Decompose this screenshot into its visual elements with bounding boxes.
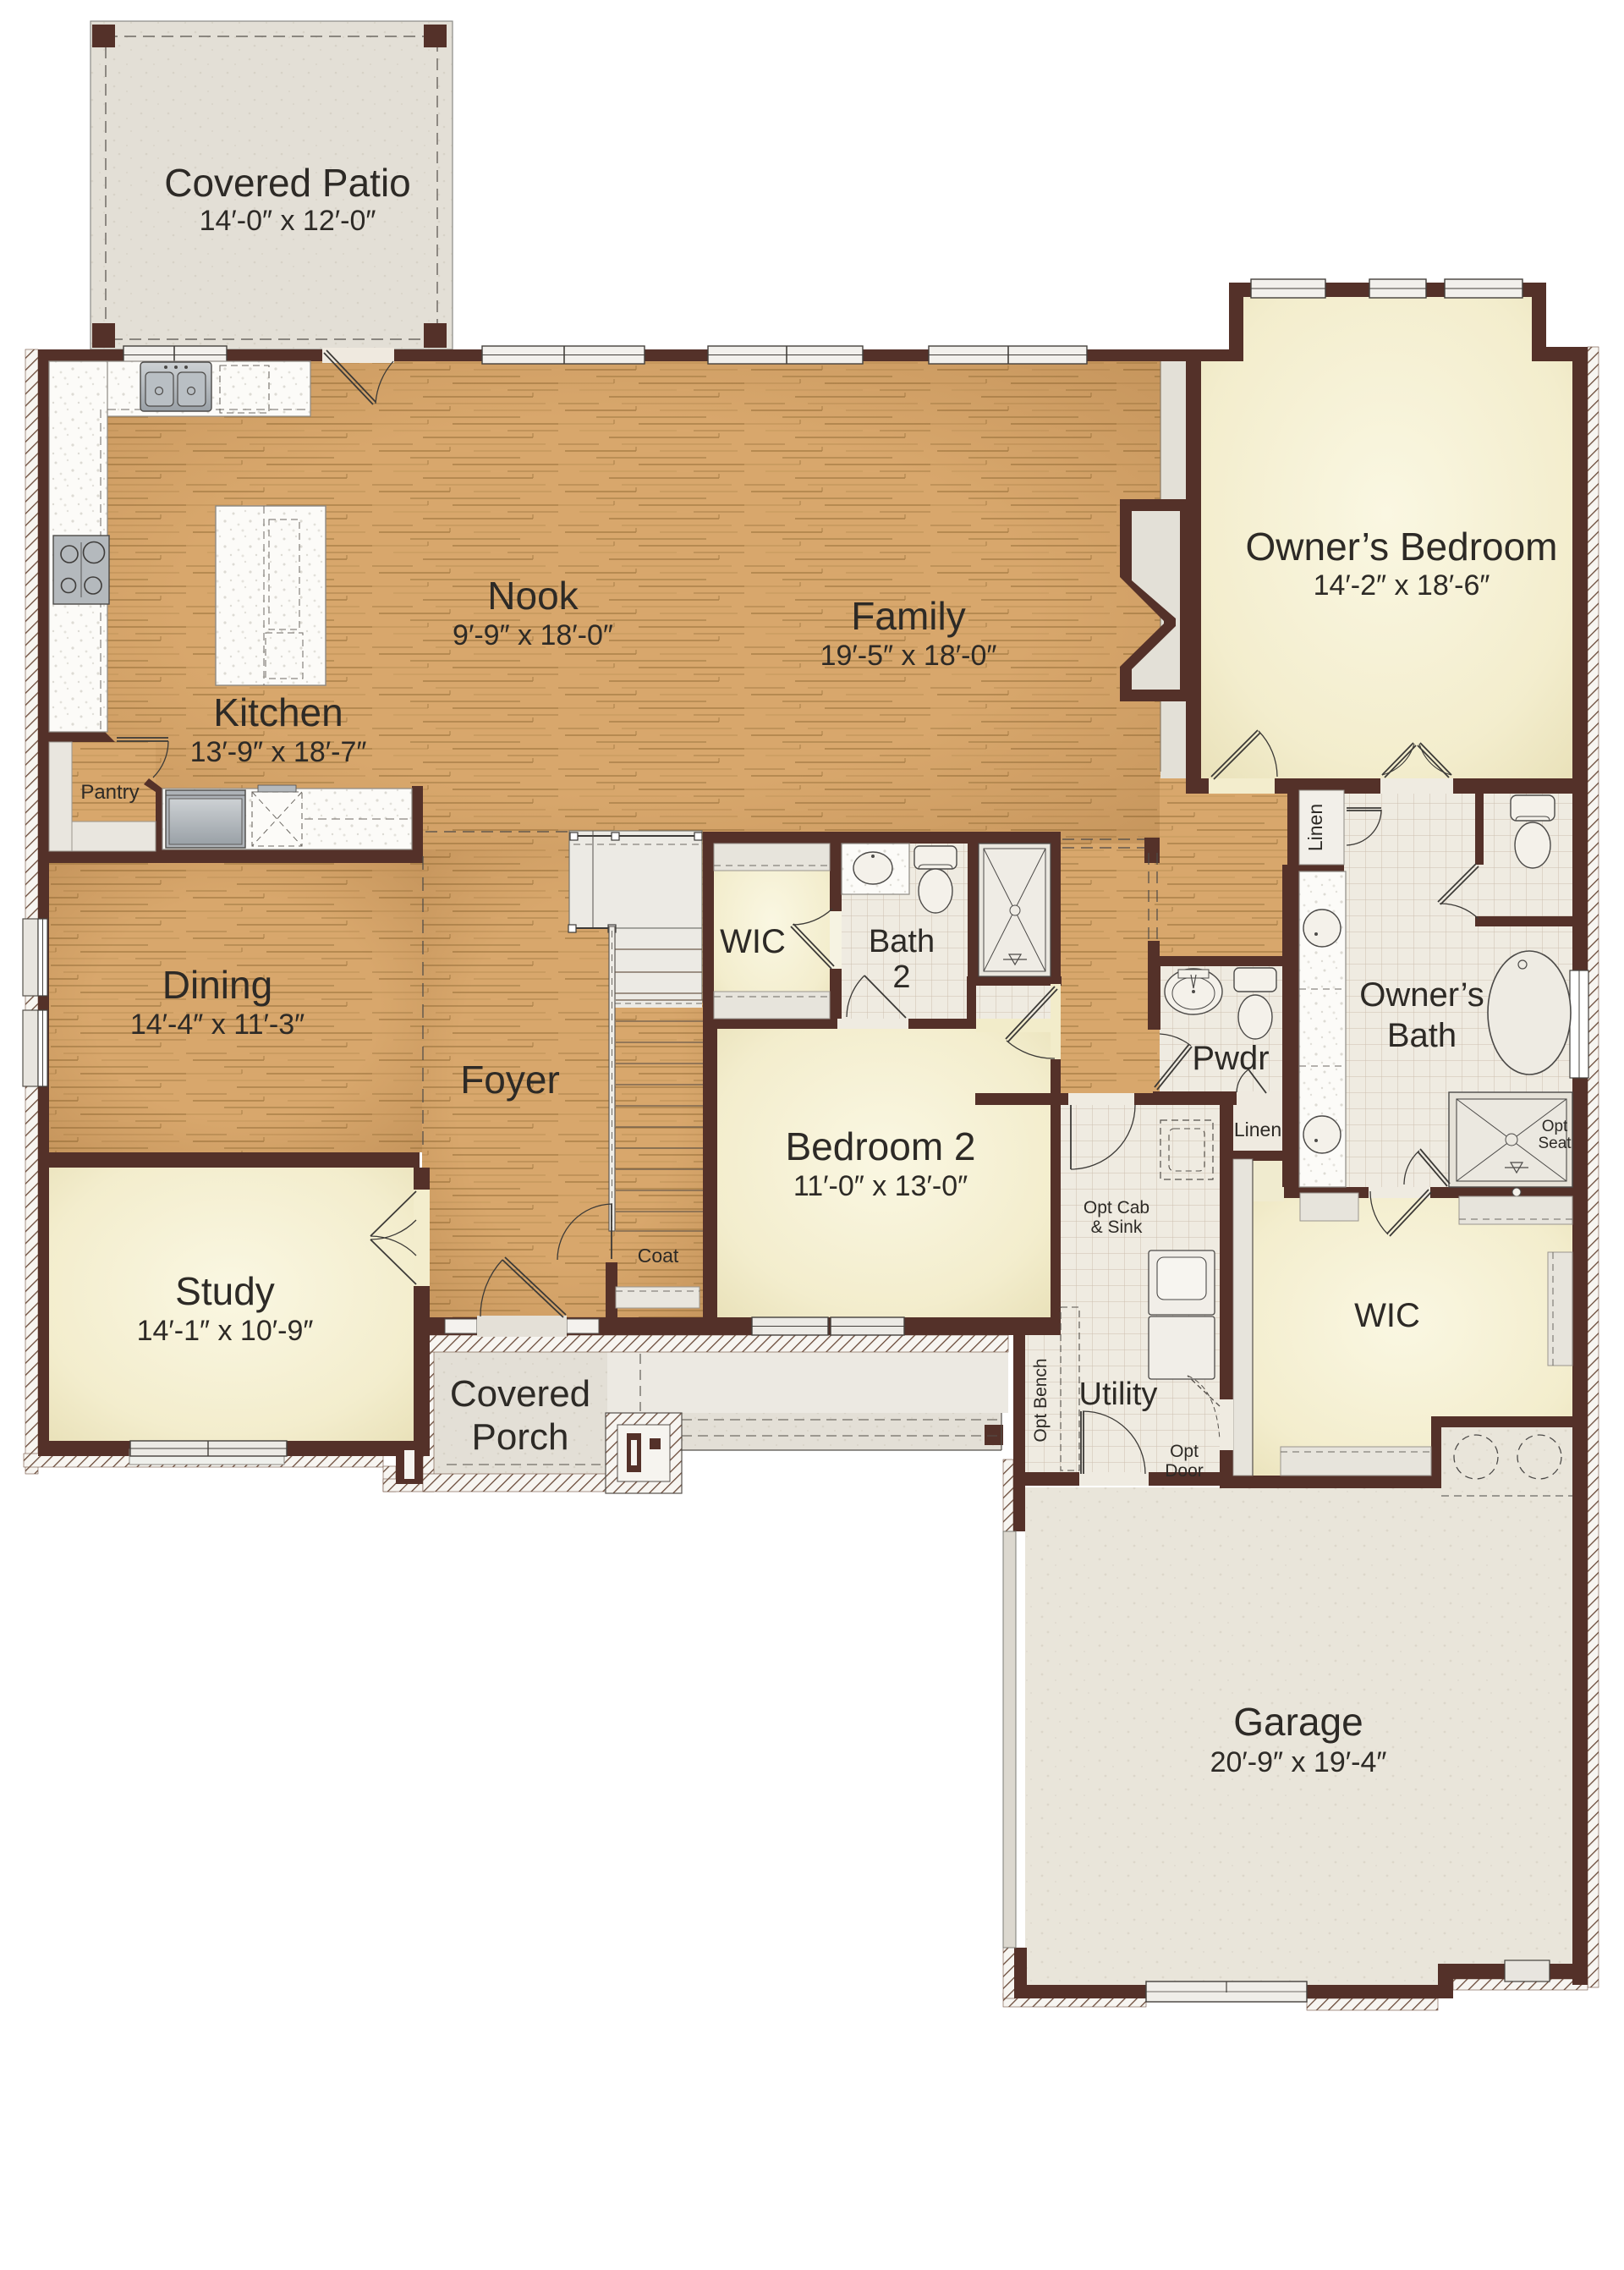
svg-text:20′-9″ x 19′-4″: 20′-9″ x 19′-4″ bbox=[1210, 1746, 1387, 1778]
svg-text:Study: Study bbox=[175, 1269, 275, 1313]
svg-text:11′-0″ x 13′-0″: 11′-0″ x 13′-0″ bbox=[793, 1170, 968, 1202]
svg-text:Bath: Bath bbox=[1387, 1017, 1457, 1054]
svg-text:Linen: Linen bbox=[1304, 804, 1326, 851]
svg-text:9′-9″ x 18′-0″: 9′-9″ x 18′-0″ bbox=[453, 619, 613, 651]
svg-text:Covered Patio: Covered Patio bbox=[164, 161, 411, 205]
svg-text:Covered: Covered bbox=[450, 1373, 590, 1415]
svg-text:Garage: Garage bbox=[1233, 1700, 1363, 1744]
svg-text:14′-0″ x 12′-0″: 14′-0″ x 12′-0″ bbox=[200, 205, 376, 237]
svg-text:Opt: Opt bbox=[1542, 1118, 1568, 1135]
svg-text:WIC: WIC bbox=[720, 923, 786, 960]
svg-text:Dining: Dining bbox=[162, 963, 272, 1007]
svg-text:14′-2″ x 18′-6″: 14′-2″ x 18′-6″ bbox=[1314, 569, 1490, 602]
svg-text:Opt Bench: Opt Bench bbox=[1031, 1358, 1051, 1442]
svg-text:Nook: Nook bbox=[487, 574, 579, 618]
svg-text:14′-4″ x 11′-3″: 14′-4″ x 11′-3″ bbox=[130, 1009, 304, 1041]
svg-text:Bedroom 2: Bedroom 2 bbox=[785, 1124, 975, 1168]
svg-text:Pantry: Pantry bbox=[80, 781, 139, 804]
svg-text:Seat: Seat bbox=[1538, 1135, 1572, 1152]
svg-text:Owner’s Bedroom: Owner’s Bedroom bbox=[1245, 525, 1557, 569]
svg-text:Opt Cab: Opt Cab bbox=[1084, 1198, 1149, 1217]
svg-text:Kitchen: Kitchen bbox=[213, 690, 343, 734]
svg-text:2: 2 bbox=[892, 959, 910, 995]
svg-text:Foyer: Foyer bbox=[460, 1058, 560, 1102]
svg-text:WIC: WIC bbox=[1354, 1297, 1420, 1334]
svg-text:& Sink: & Sink bbox=[1091, 1217, 1143, 1237]
svg-text:Bath: Bath bbox=[869, 924, 935, 959]
svg-text:Opt: Opt bbox=[1170, 1442, 1199, 1461]
svg-text:Family: Family bbox=[851, 594, 965, 638]
svg-text:Coat: Coat bbox=[638, 1245, 679, 1267]
svg-text:Owner’s: Owner’s bbox=[1359, 976, 1484, 1014]
svg-text:Door: Door bbox=[1165, 1461, 1204, 1481]
svg-text:Porch: Porch bbox=[472, 1416, 569, 1458]
svg-text:Linen: Linen bbox=[1234, 1119, 1281, 1140]
svg-text:Pwdr: Pwdr bbox=[1192, 1040, 1269, 1077]
svg-text:14′-1″ x 10′-9″: 14′-1″ x 10′-9″ bbox=[137, 1315, 314, 1347]
svg-text:Utility: Utility bbox=[1079, 1377, 1158, 1412]
svg-text:13′-9″ x 18′-7″: 13′-9″ x 18′-7″ bbox=[190, 736, 367, 768]
svg-text:19′-5″ x 18′-0″: 19′-5″ x 18′-0″ bbox=[820, 640, 997, 672]
